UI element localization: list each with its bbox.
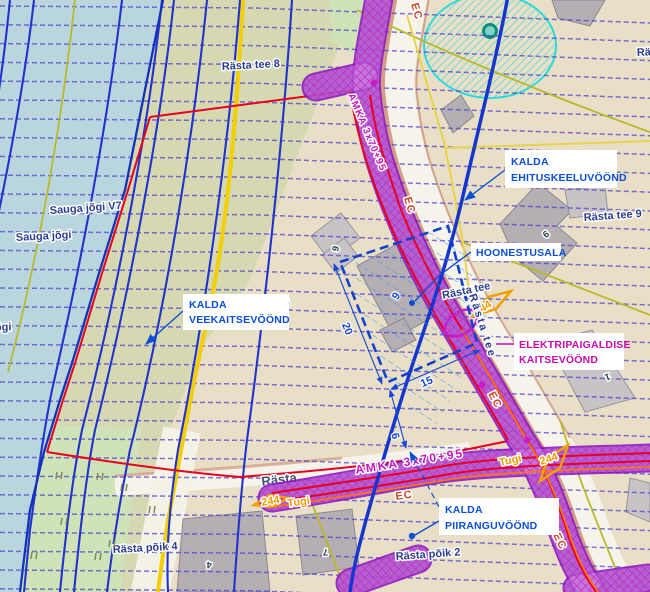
callout-line2: KAITSEVÖÖND [519,353,598,366]
ec-cable-label: EC [395,489,414,503]
callout-elektripaigaldise: ELEKTRIPAIGALDISE KAITSEVÖÖND [514,333,631,370]
planning-map: Rästa 20 15 6 9 244 244 244 Tugi Tugi AM… [0,0,650,592]
leader-dot [409,300,415,306]
street-label-clipped: Rä [637,46,650,59]
leader-dot [409,533,415,539]
callout-line1: KALDA [445,504,483,516]
callout-line1: HOONESTUSALA [476,247,567,259]
callout-ehituskeeluvoond: KALDA EHITUSKEELUVÖÖND [505,150,627,188]
map-canvas[interactable]: Rästa 20 15 6 9 244 244 244 Tugi Tugi AM… [0,0,650,592]
river-label-jogi: jõgi [0,321,12,334]
callout-line1: KALDA [189,299,227,311]
callout-line2: EHITUSKEELUVÖÖND [511,171,627,184]
callout-line1: KALDA [511,156,549,168]
callout-piiranguvoond: KALDA PIIRANGUVÖÖND [439,498,559,535]
callout-veekaitsevoond: KALDA VEEKAITSEVÖÖND [183,294,290,330]
callout-line2: PIIRANGUVÖÖND [445,519,538,532]
building-house-4 [177,511,270,592]
callout-hoonestusala: HOONESTUSALA [471,243,567,261]
callout-line1: ELEKTRIPAIGALDISE [519,339,631,351]
callout-line2: VEEKAITSEVÖÖND [189,313,290,326]
house-number: 7 [323,546,329,557]
